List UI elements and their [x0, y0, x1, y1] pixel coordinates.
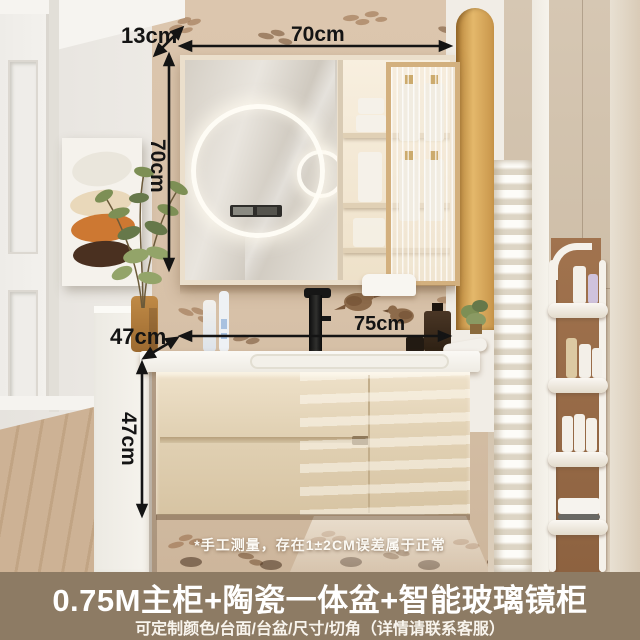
- led-mirror: [185, 60, 337, 280]
- cosmetic-jar: [358, 98, 384, 114]
- product-subtitle: 可定制颜色/台面/台盆/尺寸/切角（详情请联系客服）: [0, 615, 640, 639]
- shadow: [156, 514, 470, 520]
- display-digits: [257, 207, 277, 215]
- gold-arch-niche: [456, 8, 494, 330]
- folded-towel: [558, 498, 600, 514]
- baseboard: [0, 396, 100, 410]
- cart-bottle: [579, 344, 591, 378]
- cosmetic-jar: [356, 115, 386, 132]
- dimension-label-cabinet-height: 47cm: [116, 412, 140, 466]
- dimension-label-mirror-depth: 13cm: [121, 23, 177, 49]
- led-ring-light: [191, 104, 325, 238]
- smart-display: [230, 205, 282, 217]
- cart-bottle: [588, 274, 598, 304]
- dimension-label-counter-depth: 47cm: [110, 324, 166, 350]
- storage-cart-shelf: [548, 520, 608, 535]
- toothbrush-stripe: [221, 333, 227, 339]
- door-panel: [8, 60, 38, 254]
- cart-bottle: [592, 348, 602, 378]
- fluted-panel: [494, 160, 532, 572]
- integrated-basin: [250, 354, 449, 369]
- wall-pillar: [532, 0, 549, 575]
- smart-mirror-cabinet: [180, 55, 455, 285]
- art-stroke: [70, 148, 134, 190]
- dimension-label-mirror-width: 70cm: [291, 23, 345, 47]
- door-frame: [49, 0, 59, 412]
- dimension-label-mirror-height: 70cm: [145, 139, 169, 193]
- storage-cart-shelf: [548, 378, 608, 393]
- measurement-disclaimer: *手工测量，存在1±2CM误差属于正常: [0, 535, 640, 555]
- cart-bottle: [562, 416, 573, 452]
- dimension-label-counter-width: 75cm: [354, 313, 405, 336]
- faucet-handle: [322, 316, 331, 321]
- art-stroke: [70, 211, 136, 244]
- sunlight-stripes: [300, 372, 470, 515]
- vanity-cabinet: [156, 372, 470, 515]
- fluted-glass-door: [386, 62, 460, 286]
- cart-soap-bottle: [566, 338, 577, 378]
- product-banner: 0.75M主柜+陶瓷一体盆+智能玻璃镜柜 可定制颜色/台面/台盆/尺寸/切角（详…: [0, 572, 640, 640]
- white-door: [0, 14, 49, 410]
- cosmetic-bottle: [358, 152, 382, 202]
- toothbrush-stripe: [221, 319, 227, 329]
- electric-toothbrush: [219, 291, 229, 352]
- cart-bottle: [586, 418, 597, 452]
- right-wall-edge: [610, 0, 640, 575]
- black-faucet: [309, 295, 322, 353]
- towel-on-shelf: [362, 274, 416, 296]
- cream-jar: [406, 337, 424, 352]
- cart-bottle: [574, 414, 585, 452]
- cosmetic-jar: [353, 218, 385, 247]
- toothpaste-tube: [203, 300, 216, 352]
- product-photo-bathroom-vanity: 13cm 70cm 70cm 47cm 75cm 47cm *手工测量，存在1±…: [0, 0, 640, 640]
- product-title: 0.75M主柜+陶瓷一体盆+智能玻璃镜柜: [0, 575, 640, 620]
- art-stroke: [72, 239, 133, 268]
- fluted-glass-texture: [391, 67, 455, 281]
- door-panel: [8, 290, 38, 404]
- storage-cart-shelf: [548, 303, 608, 318]
- storage-cart-shelf: [548, 452, 608, 467]
- display-digits: [233, 207, 253, 215]
- cart-bottle: [573, 266, 586, 304]
- abstract-wall-art: [62, 138, 142, 286]
